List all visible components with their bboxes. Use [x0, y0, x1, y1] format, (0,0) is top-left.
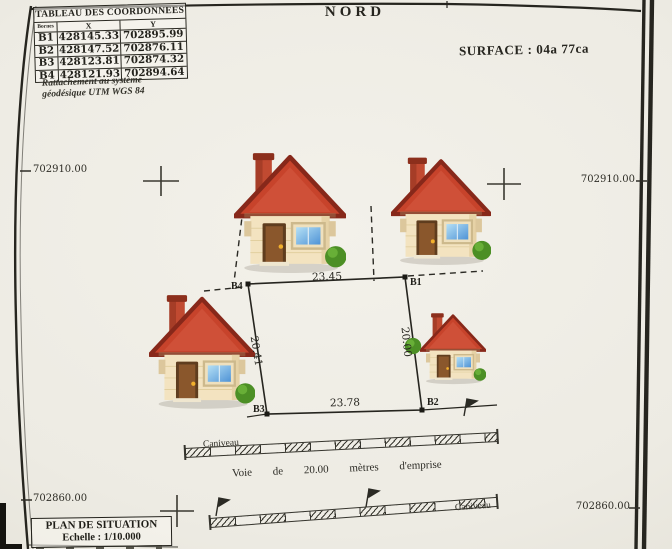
survey-flag-icon [216, 399, 477, 516]
coordinates-table: TABLEAU DES COORDONNEES Bornes X Y B1 42… [33, 3, 188, 83]
surface-label: SURFACE : 04a 77ca [459, 41, 589, 60]
plan-situation-box: PLAN DE SITUATION Echelle : 1/10.000 [31, 516, 172, 548]
caniveau-label-lower: Caniveau [455, 501, 492, 513]
road-axis-label: Voie de 20.00 mètres d'emprise [232, 457, 492, 480]
dimension-right: 20.00 [398, 321, 414, 362]
corner-label-b3: B3 [253, 404, 265, 415]
cell-y: 702895.99 [121, 29, 186, 42]
grid-label-left-bottom: 702860.00 [33, 493, 87, 504]
cell-x: 428147.52 [58, 43, 121, 56]
cell-borne: B1 [35, 32, 58, 44]
house-icon [149, 291, 255, 409]
plan-situation-scale: Echelle : 1/10.000 [32, 531, 171, 544]
cell-x: 428123.81 [58, 56, 121, 69]
cell-y: 702876.11 [121, 41, 186, 54]
grid-label-left-top: 702910.00 [33, 164, 87, 175]
dimension-bottom: 23.78 [325, 396, 365, 409]
col-header-borne: Bornes [34, 22, 57, 32]
corner-label-b4: B4 [231, 281, 243, 292]
col-header-x: X [57, 21, 120, 32]
cell-borne: B3 [35, 57, 58, 69]
scan-edge-artifact [0, 544, 22, 549]
geodesic-note-line2: géodésique UTM WGS 84 [42, 85, 145, 100]
grid-label-right-bottom: 702860.00 [556, 501, 630, 512]
north-label: NORD [312, 4, 398, 21]
cell-y: 702874.32 [121, 54, 186, 67]
grid-label-right-top: 702910.00 [563, 174, 635, 185]
house-icon [234, 149, 346, 273]
scan-edge-artifact [0, 503, 6, 549]
caniveau-label-upper: Caniveau [203, 438, 239, 450]
col-header-y: Y [120, 19, 185, 30]
geodesic-note: Rattachement au système géodésique UTM W… [42, 74, 145, 100]
house-icon [391, 154, 491, 265]
cell-borne: B2 [35, 45, 58, 57]
corner-label-b1: B1 [410, 277, 422, 288]
dimension-top: 23.45 [307, 270, 347, 283]
partial-box-cutoff [36, 545, 162, 549]
parcel-corner-dots [246, 275, 425, 417]
cell-x: 428145.33 [58, 31, 121, 44]
house-icon [420, 305, 486, 390]
survey-plan-scan: TABLEAU DES COORDONNEES Bornes X Y B1 42… [0, 0, 672, 549]
corner-label-b2: B2 [427, 397, 439, 408]
plan-situation-title: PLAN DE SITUATION [32, 518, 171, 533]
